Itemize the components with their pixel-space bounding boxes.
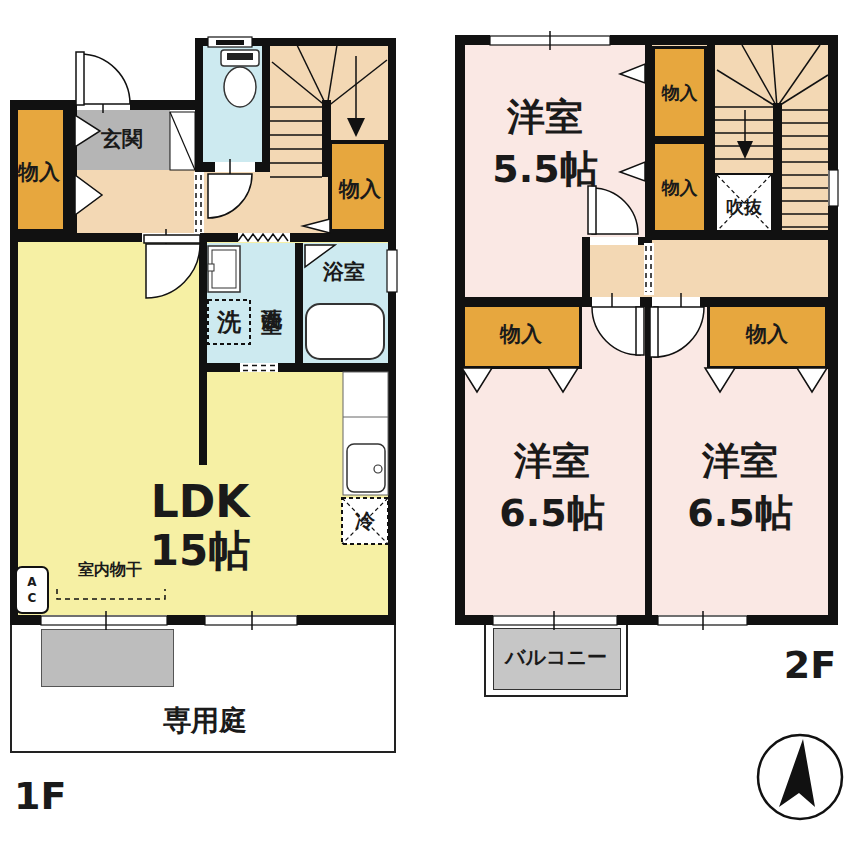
washroom-label: 洗面室 [255, 245, 287, 345]
shoe-cabinet-icon [170, 112, 195, 170]
closet-2f-bottom-left-label: 物入 [464, 321, 578, 347]
bathtub-icon [306, 304, 384, 359]
atrium-void-label: 吹抜 [715, 195, 773, 219]
ldk-label: LDK [110, 478, 290, 526]
closet-1f-right-label: 物入 [331, 177, 389, 201]
private-garden-label: 専用庭 [125, 704, 285, 738]
refrigerator-label: 冷 [349, 507, 381, 535]
entrance-label: 玄関 [90, 126, 154, 152]
toilet-icon [221, 50, 259, 107]
closet-1f-left-label: 物入 [11, 160, 67, 184]
closet-2f-top2-label: 物入 [652, 176, 707, 200]
floor1-label: 1F [14, 774, 104, 818]
floor-plan: 玄関 物入 物入 洗面室 浴室 洗 LDK 15帖 冷 室内物干 AC 専用庭 … [0, 0, 846, 846]
washer-label: 洗 [213, 307, 245, 337]
bedroom65-right-size-label: 6.5帖 [658, 490, 822, 536]
balcony-label: バルコニー [484, 644, 628, 670]
washbasin-icon [208, 246, 240, 292]
floor2-label: 2F [772, 644, 846, 686]
closet-2f-top1-label: 物入 [652, 81, 707, 105]
bedroom65-left-size-label: 6.5帖 [472, 490, 632, 536]
bedroom55-size-label: 5.5帖 [463, 146, 627, 192]
bathroom-label: 浴室 [310, 259, 378, 285]
kitchen-counter-icon [343, 372, 388, 495]
closet-2f-bottom-right-label: 物入 [710, 321, 824, 347]
bedroom65-right-label: 洋室 [658, 438, 822, 484]
compass-icon [758, 735, 842, 819]
bedroom55-label: 洋室 [463, 94, 627, 140]
ac-unit-label: AC [16, 569, 48, 613]
indoor-drying-label: 室内物干 [58, 560, 162, 580]
bedroom65-left-label: 洋室 [472, 438, 632, 484]
